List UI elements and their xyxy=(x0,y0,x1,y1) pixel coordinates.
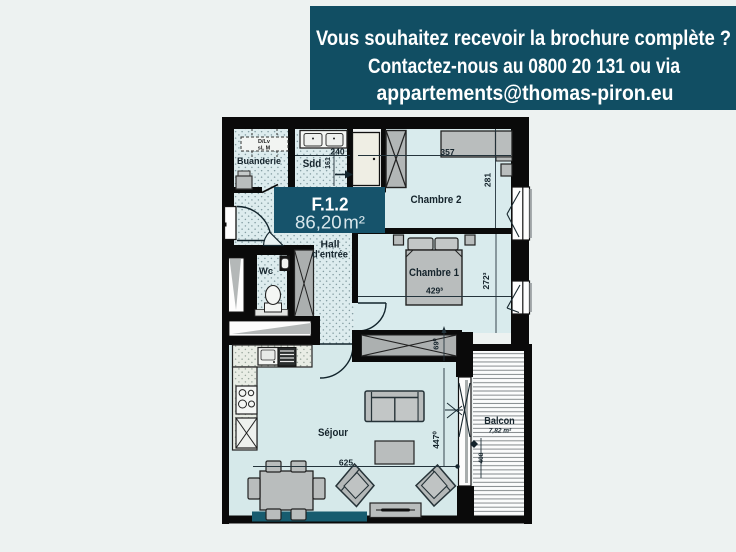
svg-text:161: 161 xyxy=(325,157,332,169)
svg-text:d'entrée: d'entrée xyxy=(312,250,348,261)
svg-text:Contactez-nous au 0800 20 131: Contactez-nous au 0800 20 131 ou via xyxy=(368,55,680,78)
svg-text:357: 357 xyxy=(440,147,454,157)
svg-text:240: 240 xyxy=(330,147,344,157)
svg-text:Chambre 1: Chambre 1 xyxy=(409,267,459,279)
svg-text:Séjour: Séjour xyxy=(318,427,349,439)
svg-text:625: 625 xyxy=(339,458,353,468)
svg-text:447⁰: 447⁰ xyxy=(431,431,441,449)
svg-text:281: 281 xyxy=(483,173,493,187)
svg-text:F.1.2: F.1.2 xyxy=(312,194,349,215)
svg-text:Wc: Wc xyxy=(259,266,273,277)
svg-text:86,20 m²: 86,20 m² xyxy=(295,213,365,233)
svg-text:sL M: sL M xyxy=(258,146,271,152)
svg-text:429³: 429³ xyxy=(426,286,443,296)
svg-text:Buanderie: Buanderie xyxy=(237,156,281,166)
svg-text:Vous souhaitez recevoir la bro: Vous souhaitez recevoir la brochure comp… xyxy=(316,27,731,50)
svg-text:Balcon: Balcon xyxy=(484,415,515,427)
svg-text:272³: 272³ xyxy=(481,272,491,289)
svg-text:408: 408 xyxy=(478,452,485,463)
svg-text:69⁰: 69⁰ xyxy=(432,337,441,349)
svg-text:appartements@thomas-piron.eu: appartements@thomas-piron.eu xyxy=(377,82,674,105)
svg-text:D/Lv: D/Lv xyxy=(258,139,271,145)
svg-text:Sdd: Sdd xyxy=(303,158,322,170)
svg-text:7,82 m²: 7,82 m² xyxy=(489,428,512,435)
svg-text:Chambre 2: Chambre 2 xyxy=(411,194,462,206)
